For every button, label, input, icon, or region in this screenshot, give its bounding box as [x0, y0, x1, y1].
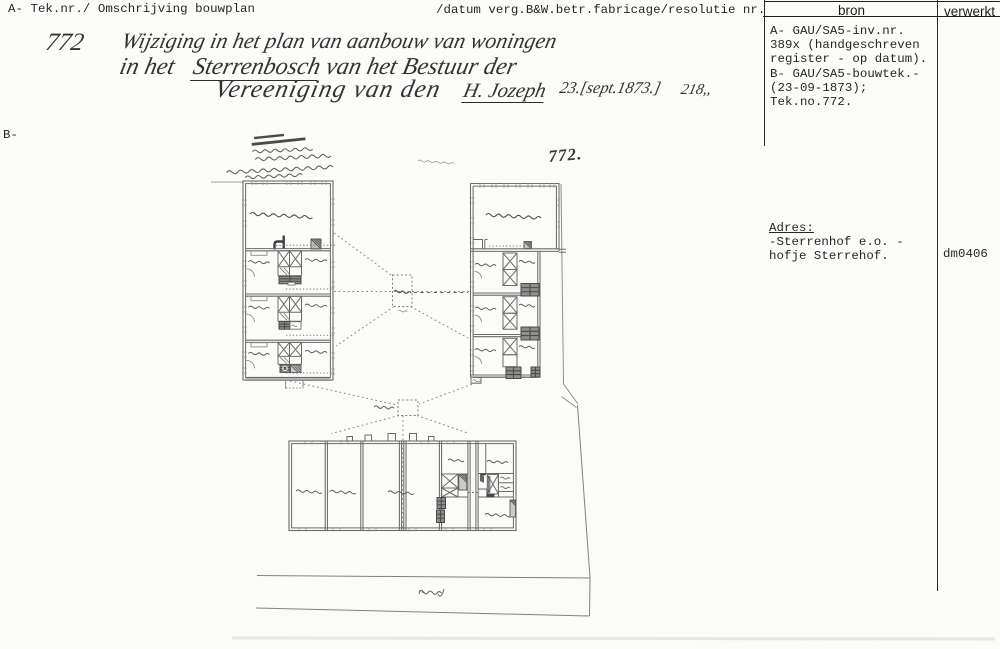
svg-text:772.: 772. [548, 144, 583, 166]
